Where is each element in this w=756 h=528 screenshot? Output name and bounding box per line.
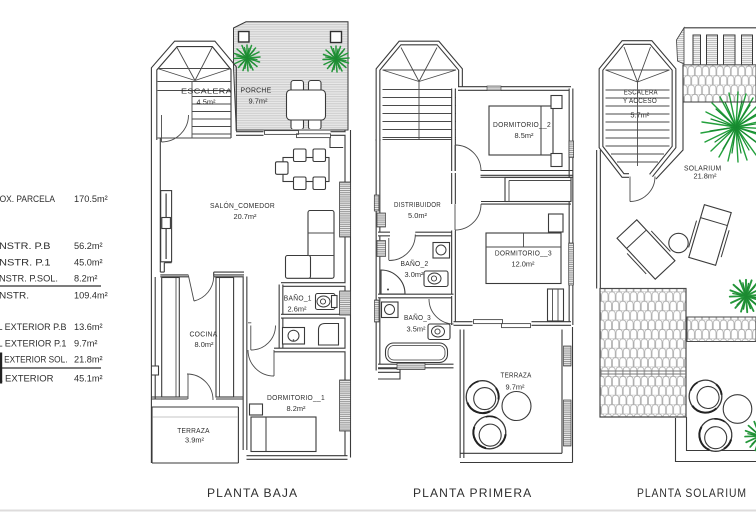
svg-text:DORMITORIO__3: DORMITORIO__3 xyxy=(495,249,552,258)
svg-text:ESCALERA: ESCALERA xyxy=(181,87,233,96)
svg-text:109.4m²: 109.4m² xyxy=(74,291,108,301)
svg-text:TERRAZA: TERRAZA xyxy=(501,371,533,380)
svg-text:PORCHE: PORCHE xyxy=(241,86,272,95)
svg-text:NSTR. P.SOL.: NSTR. P.SOL. xyxy=(0,274,58,284)
svg-text:20.7m²: 20.7m² xyxy=(233,212,257,221)
svg-text:NSTR. P.1: NSTR. P.1 xyxy=(0,258,50,268)
svg-text:8.0m²: 8.0m² xyxy=(195,340,214,349)
svg-text:12.0m²: 12.0m² xyxy=(511,260,535,269)
svg-text:SALÓN_COMEDOR: SALÓN_COMEDOR xyxy=(210,201,275,210)
svg-text:L EXTERIOR SOL.: L EXTERIOR SOL. xyxy=(0,355,68,365)
svg-text:NSTR.: NSTR. xyxy=(0,291,29,301)
svg-text:5.7m²: 5.7m² xyxy=(630,111,649,120)
svg-text:170.5m²: 170.5m² xyxy=(74,194,108,204)
svg-text:8.5m²: 8.5m² xyxy=(515,131,534,140)
svg-text:DORMITORIO__2: DORMITORIO__2 xyxy=(493,120,551,129)
svg-text:Y ACCESO: Y ACCESO xyxy=(623,96,657,105)
svg-text:5.0m²: 5.0m² xyxy=(408,211,427,220)
svg-text:9.7m²: 9.7m² xyxy=(506,383,525,392)
svg-text:PLANTA BAJA: PLANTA BAJA xyxy=(207,486,298,500)
svg-text:BAÑO_2: BAÑO_2 xyxy=(401,259,429,268)
svg-text:3.9m²: 3.9m² xyxy=(185,436,204,445)
svg-text:L EXTERIOR P.B: L EXTERIOR P.B xyxy=(0,322,67,332)
svg-text:8.2m²: 8.2m² xyxy=(74,274,98,284)
svg-text:13.6m²: 13.6m² xyxy=(74,322,103,332)
svg-text:NSTR. P.B: NSTR. P.B xyxy=(0,241,51,251)
svg-text:8.2m²: 8.2m² xyxy=(287,404,306,413)
svg-text:PLANTA SOLARIUM: PLANTA SOLARIUM xyxy=(637,486,747,500)
svg-text:L EXTERIOR: L EXTERIOR xyxy=(0,374,54,384)
svg-text:BAÑO_1: BAÑO_1 xyxy=(284,294,312,303)
svg-text:COCINA: COCINA xyxy=(190,330,219,339)
svg-text:ROX. PARCELA: ROX. PARCELA xyxy=(0,194,56,204)
svg-text:DISTRIBUIDOR: DISTRIBUIDOR xyxy=(394,200,441,209)
svg-text:9.7m²: 9.7m² xyxy=(74,339,98,349)
svg-text:TERRAZA: TERRAZA xyxy=(177,426,210,435)
svg-text:BAÑO_3: BAÑO_3 xyxy=(404,313,431,322)
svg-text:56.2m²: 56.2m² xyxy=(74,241,103,251)
svg-text:3.5m²: 3.5m² xyxy=(407,325,426,334)
svg-text:L EXTERIOR P.1: L EXTERIOR P.1 xyxy=(0,339,67,349)
svg-text:PLANTA PRIMERA: PLANTA PRIMERA xyxy=(413,486,532,500)
svg-text:3.0m²: 3.0m² xyxy=(405,270,424,279)
svg-text:45.1m²: 45.1m² xyxy=(74,374,103,384)
svg-text:21.8m²: 21.8m² xyxy=(693,172,717,181)
svg-text:2.6m²: 2.6m² xyxy=(288,305,307,314)
svg-text:9.7m²: 9.7m² xyxy=(249,97,268,106)
svg-text:DORMITORIO__1: DORMITORIO__1 xyxy=(267,393,325,402)
svg-text:4.5m²: 4.5m² xyxy=(197,98,216,107)
svg-text:21.8m²: 21.8m² xyxy=(74,355,103,365)
svg-text:45.0m²: 45.0m² xyxy=(74,258,103,268)
